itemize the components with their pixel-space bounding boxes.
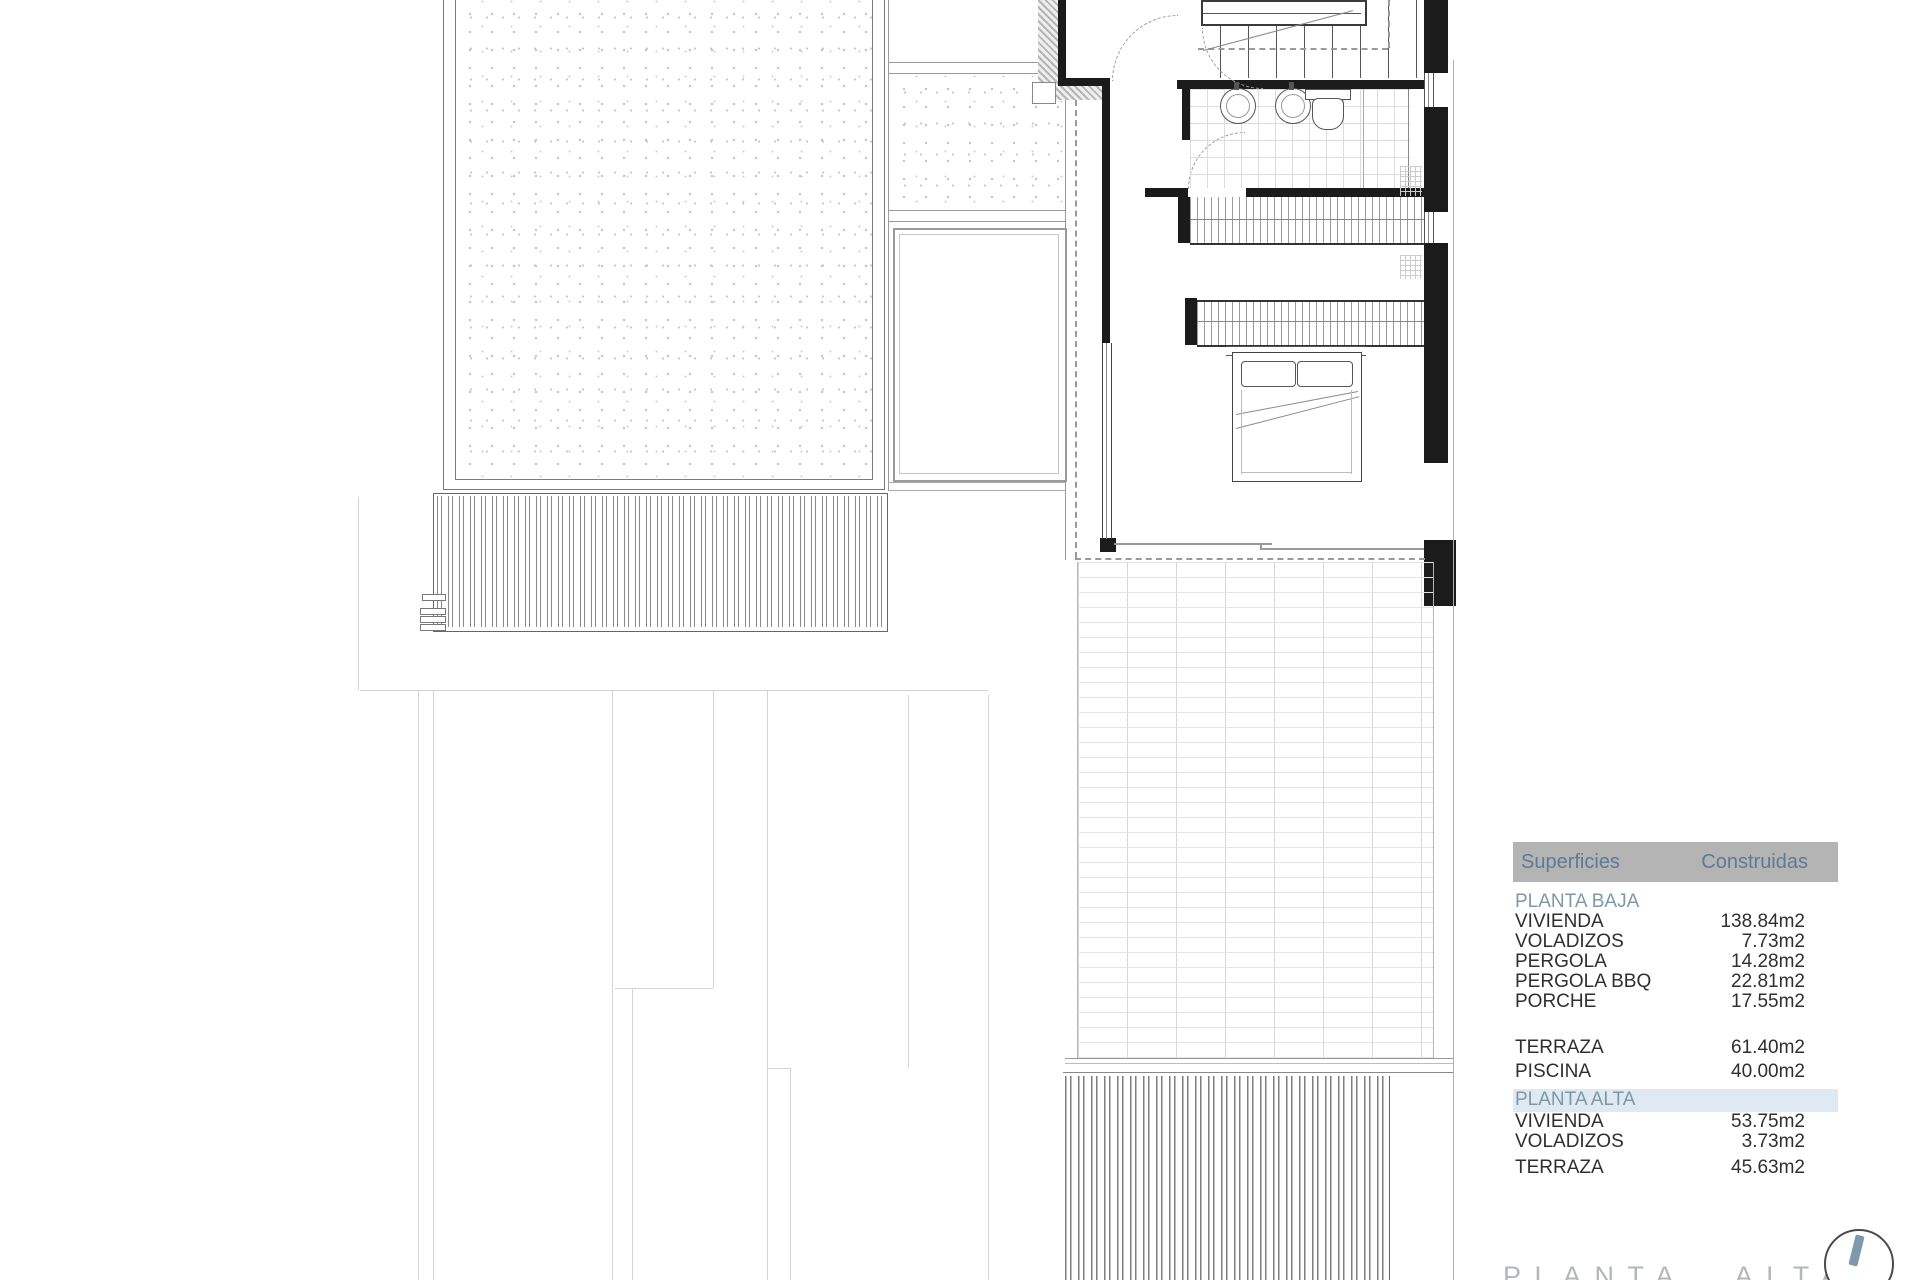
wall-niche: [1400, 255, 1422, 279]
sink-inner: [1226, 94, 1250, 118]
roof-strip-joint: [888, 490, 1065, 491]
table-row: PORCHE17.55m2: [1513, 992, 1838, 1012]
overhang-dashed-line: [1075, 100, 1077, 558]
table-row: PERGOLA BBQ22.81m2: [1513, 972, 1838, 992]
wall-segment: [1182, 89, 1190, 140]
deck-slats: [437, 496, 883, 627]
ground-floor-outline: [360, 690, 988, 691]
table-section-row: PLANTA BAJA: [1513, 892, 1838, 912]
roof-border: [443, 0, 444, 490]
roof-strip-joint: [888, 210, 1065, 211]
table-header: Superficies Construidas: [1513, 842, 1838, 882]
stair-rail-dashed: [1388, 0, 1390, 48]
areas-table: Superficies Construidas PLANTA BAJA VIVI…: [1513, 842, 1838, 1187]
roof-border: [884, 0, 885, 490]
wardrobe: [1190, 197, 1424, 245]
column-header-surfaces: Superficies: [1521, 851, 1620, 874]
table-row: TERRAZA45.63m2: [1513, 1158, 1838, 1178]
window-glazing: [1424, 212, 1434, 243]
toilet-bowl: [1312, 98, 1344, 130]
wardrobe-rail: [1190, 219, 1424, 220]
sliding-door-track: [1260, 548, 1424, 550]
ground-floor-outline: [615, 988, 713, 989]
table-row: PERGOLA14.28m2: [1513, 952, 1838, 972]
deck-step: [420, 616, 446, 623]
ground-floor-outline: [908, 695, 909, 1068]
ground-floor-outline: [418, 690, 419, 1280]
wardrobe-rail: [1197, 321, 1424, 322]
wall-segment: [1177, 80, 1424, 89]
wall-segment: [1246, 188, 1424, 197]
wall-segment: [1185, 298, 1197, 345]
wall-segment: [1100, 538, 1116, 552]
wall-niche: [1400, 166, 1422, 196]
roof-gravel-texture: [455, 0, 873, 480]
deck-step: [420, 608, 446, 615]
ground-floor-outline: [767, 690, 768, 1280]
table-row: VIVIENDA53.75m2: [1513, 1112, 1838, 1132]
wall-segment: [1424, 0, 1448, 73]
table-row: PISCINA40.00m2: [1513, 1062, 1838, 1082]
ground-floor-outline: [790, 1068, 791, 1280]
plan-boundary: [1453, 60, 1454, 1280]
window-glazing: [1424, 73, 1434, 107]
ground-floor-outline: [632, 988, 633, 1280]
table-row: TERRAZA61.40m2: [1513, 1038, 1838, 1058]
ground-floor-outline: [988, 695, 989, 1280]
pillow: [1297, 361, 1353, 387]
floor-plan-sheet: Superficies Construidas PLANTA BAJA VIVI…: [0, 0, 1920, 1280]
terrace-border: [1433, 562, 1434, 1058]
table-row: VOLADIZOS3.73m2: [1513, 1132, 1838, 1152]
sink-tap: [1289, 82, 1294, 90]
overhang-dashed-line: [1075, 558, 1425, 560]
pillow: [1241, 361, 1296, 387]
north-needle-icon: [1848, 1234, 1864, 1266]
roof-strip-joint: [888, 482, 1065, 483]
table-row: VIVIENDA138.84m2: [1513, 912, 1838, 932]
pool-outline: [612, 690, 613, 1280]
ground-floor-outline: [713, 690, 714, 988]
pergola-border: [1063, 1072, 1453, 1073]
bed-foot-line: [1241, 472, 1351, 473]
deck-step: [420, 624, 446, 631]
sink-tap: [1234, 82, 1239, 90]
wall-segment: [1145, 188, 1188, 197]
wall-segment: [1102, 80, 1110, 343]
column-header-built: Construidas: [1701, 851, 1808, 874]
shower-partition: [1363, 89, 1364, 188]
sliding-door-overlap: [1260, 543, 1262, 550]
wall-segment: [1424, 243, 1448, 463]
wall-segment: [1424, 107, 1448, 212]
terrace-border: [1065, 1063, 1453, 1064]
ground-floor-outline: [358, 497, 359, 690]
bed-side-line: [1241, 390, 1242, 474]
pool-outline: [433, 690, 434, 1280]
north-compass-icon: [1824, 1229, 1894, 1280]
roof-strip-joint: [888, 221, 1065, 222]
pergola-louvers: [1065, 1076, 1387, 1280]
window-glazing: [1102, 343, 1112, 539]
roof-border: [443, 489, 885, 490]
table-row: VOLADIZOS7.73m2: [1513, 932, 1838, 952]
tiled-terrace: [1077, 562, 1434, 1058]
wall-segment: [1178, 197, 1190, 243]
ground-floor-outline: [767, 1068, 790, 1069]
wall-cap: [1032, 82, 1056, 104]
bed-side-line: [1351, 390, 1352, 474]
sink-inner: [1281, 94, 1305, 118]
table-section-row: PLANTA ALTA: [1513, 1090, 1838, 1110]
door-swing-arc: [1112, 15, 1178, 81]
wardrobe: [1197, 300, 1424, 347]
sliding-door-track: [1114, 543, 1272, 545]
pergola-border: [1389, 1076, 1390, 1280]
deck-step: [422, 594, 446, 601]
plan-title: PLANTA ALTA: [1503, 1261, 1863, 1280]
wall-segment: [1058, 0, 1066, 86]
skylight-opening-inner: [899, 234, 1059, 474]
terrace-border: [1065, 1058, 1453, 1059]
